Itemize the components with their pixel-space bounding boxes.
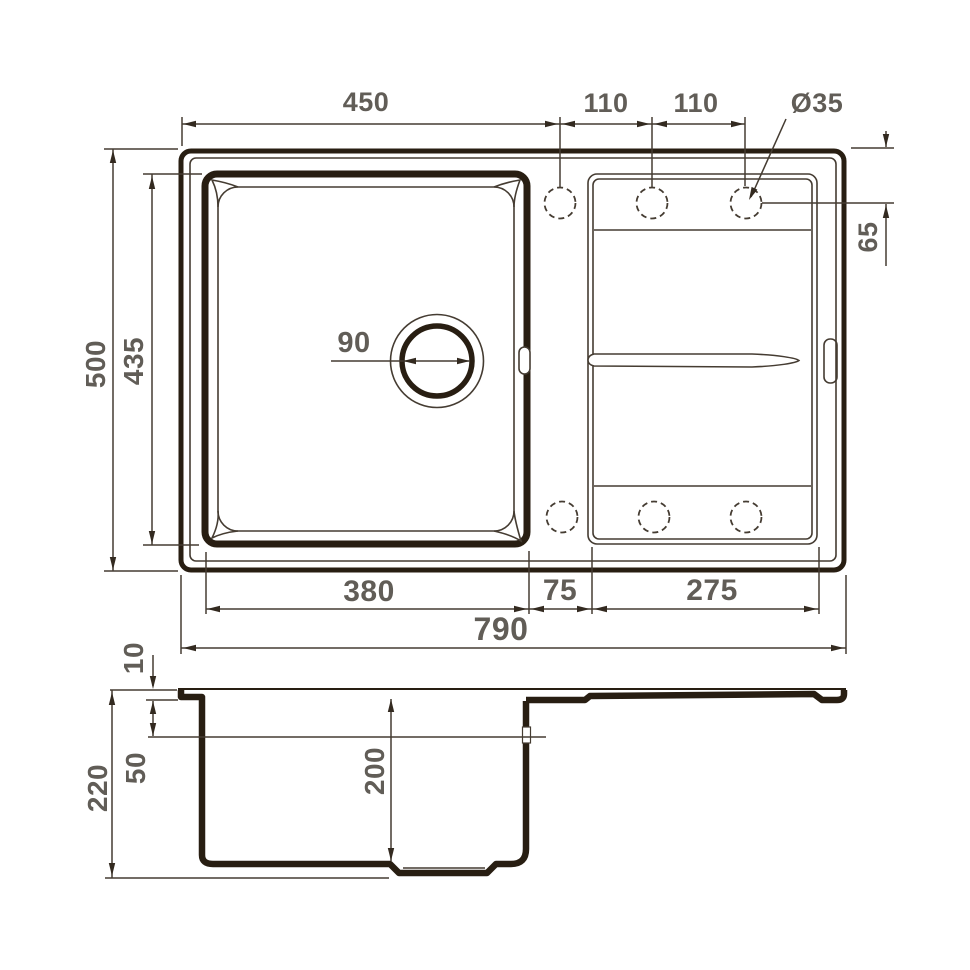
drainboard: [588, 174, 837, 544]
faucet-hole-dashed-bottom-1: [547, 502, 578, 533]
top-view: [181, 151, 844, 570]
faucet-hole-dashed-top-1: [545, 188, 576, 219]
dim-label-220: 220: [82, 764, 113, 812]
faucet-hole-dashed-top-2: [637, 188, 668, 219]
dim-label-110-left: 110: [583, 88, 628, 118]
bowl: [205, 174, 530, 544]
bowl-corner-chamfer-tr: [494, 180, 520, 207]
dim-label-75: 75: [543, 574, 577, 607]
dim-label-200: 200: [359, 747, 390, 795]
faucet-hole-dashed-bottom-2: [639, 502, 670, 533]
dim-label-790: 790: [474, 611, 529, 647]
bowl-corner-chamfer-bl: [212, 511, 238, 538]
section-view: [178, 689, 846, 873]
dimension-arrowheads: [109, 121, 889, 876]
faucet-hole-dashed-top-3: [731, 188, 762, 219]
dim-label-500: 500: [80, 340, 111, 388]
section-drainboard-profile: [526, 690, 844, 700]
dim-label-65: 65: [853, 221, 883, 252]
dim-label-380: 380: [343, 575, 395, 608]
bowl-outline: [205, 174, 527, 544]
extension-lines: [104, 117, 894, 878]
drainboard-groove: [588, 354, 799, 367]
bowl-overflow-slot: [519, 347, 530, 374]
rim-notch: [824, 339, 837, 383]
section-bowl-profile: [181, 690, 526, 873]
sink-dimension-drawing: 450 110 110 Ø35 500 435 65 90 380 75 275…: [0, 0, 970, 970]
dim-label-275: 275: [686, 574, 738, 607]
dim-label-drain-90: 90: [337, 327, 370, 359]
dim-label-50: 50: [120, 752, 151, 784]
bowl-corner-chamfer-tl: [212, 180, 238, 207]
sink-technical-drawing-page: 450 110 110 Ø35 500 435 65 90 380 75 275…: [0, 0, 970, 970]
dim-label-435: 435: [118, 337, 149, 385]
dim-label-10: 10: [118, 642, 149, 674]
faucet-hole-dashed-bottom-3: [731, 502, 762, 533]
dim-label-110-right: 110: [673, 88, 718, 118]
dim-label-hole-diameter: Ø35: [791, 88, 844, 118]
dim-label-450: 450: [343, 87, 390, 117]
